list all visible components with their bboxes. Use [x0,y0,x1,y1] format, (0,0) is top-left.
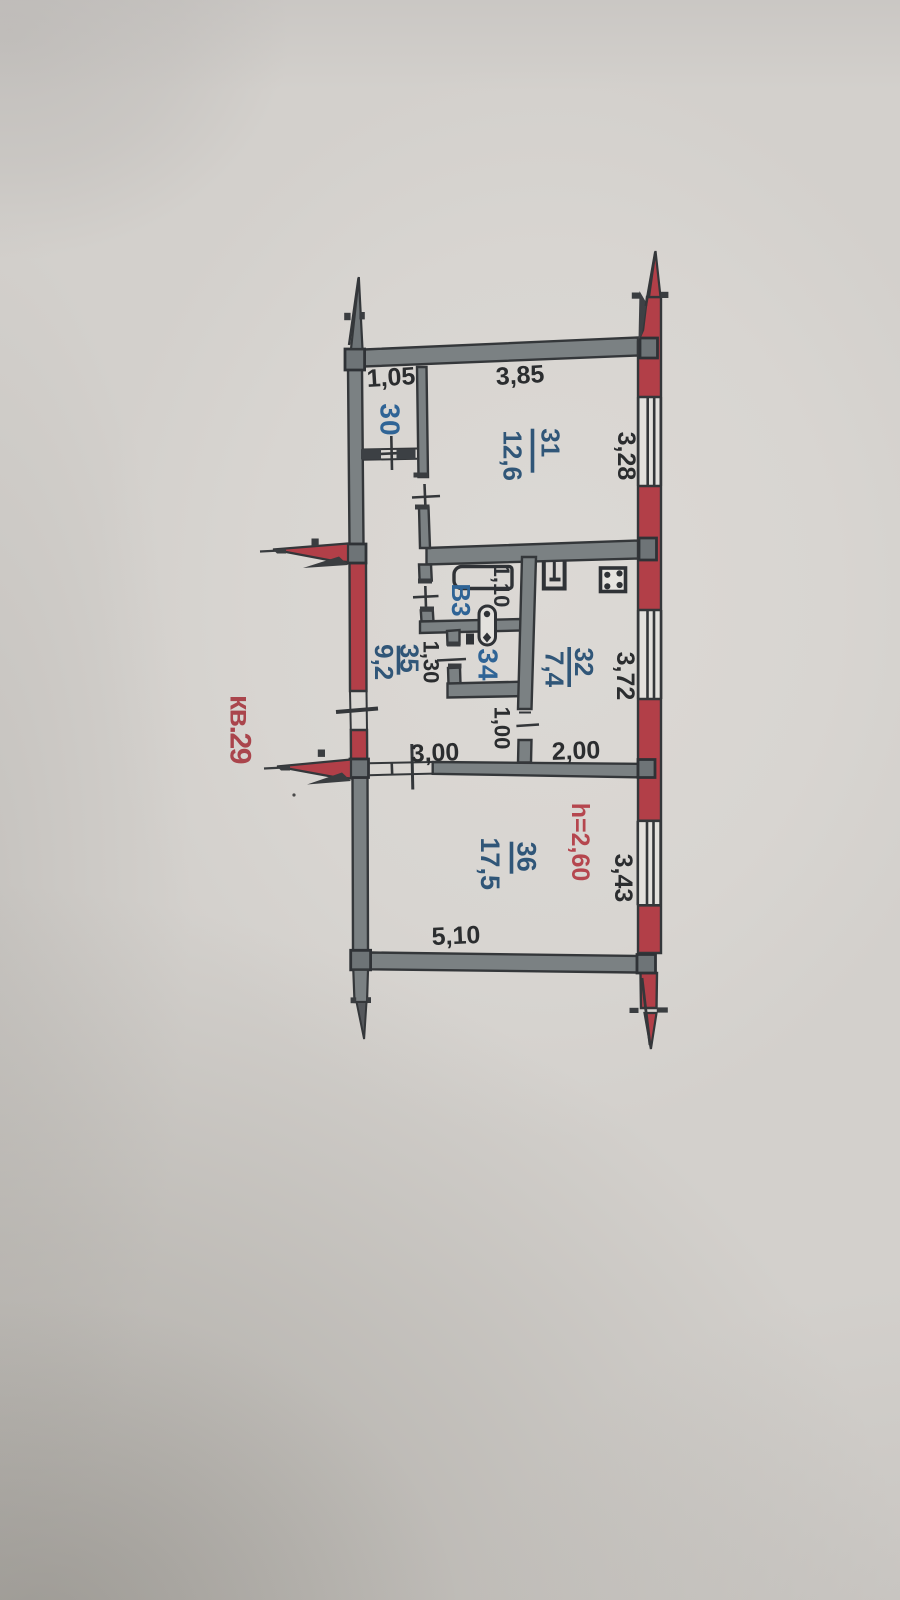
svg-text:34: 34 [473,648,504,681]
svg-text:3,00: 3,00 [410,738,460,768]
svg-text:3,28: 3,28 [612,432,640,481]
svg-text:h=2,60: h=2,60 [566,803,594,882]
svg-text:9,2: 9,2 [369,644,399,680]
svg-text:кв.29: кв.29 [224,695,257,764]
svg-text:3,85: 3,85 [495,360,545,391]
svg-text:36: 36 [512,842,542,872]
svg-text:1,00: 1,00 [490,707,515,750]
svg-text:В3: В3 [446,583,476,616]
svg-text:3,43: 3,43 [609,854,637,903]
svg-text:31: 31 [536,428,566,457]
svg-text:7,4: 7,4 [540,651,570,688]
svg-text:12,6: 12,6 [498,430,528,481]
svg-text:1,05: 1,05 [366,362,416,393]
svg-text:32: 32 [569,648,599,677]
svg-text:1,10: 1,10 [489,565,514,608]
svg-text:3,72: 3,72 [611,652,639,701]
svg-text:30: 30 [375,403,406,436]
svg-text:5,10: 5,10 [431,921,481,951]
svg-text:2,00: 2,00 [551,736,601,766]
svg-text:17,5: 17,5 [475,837,505,890]
